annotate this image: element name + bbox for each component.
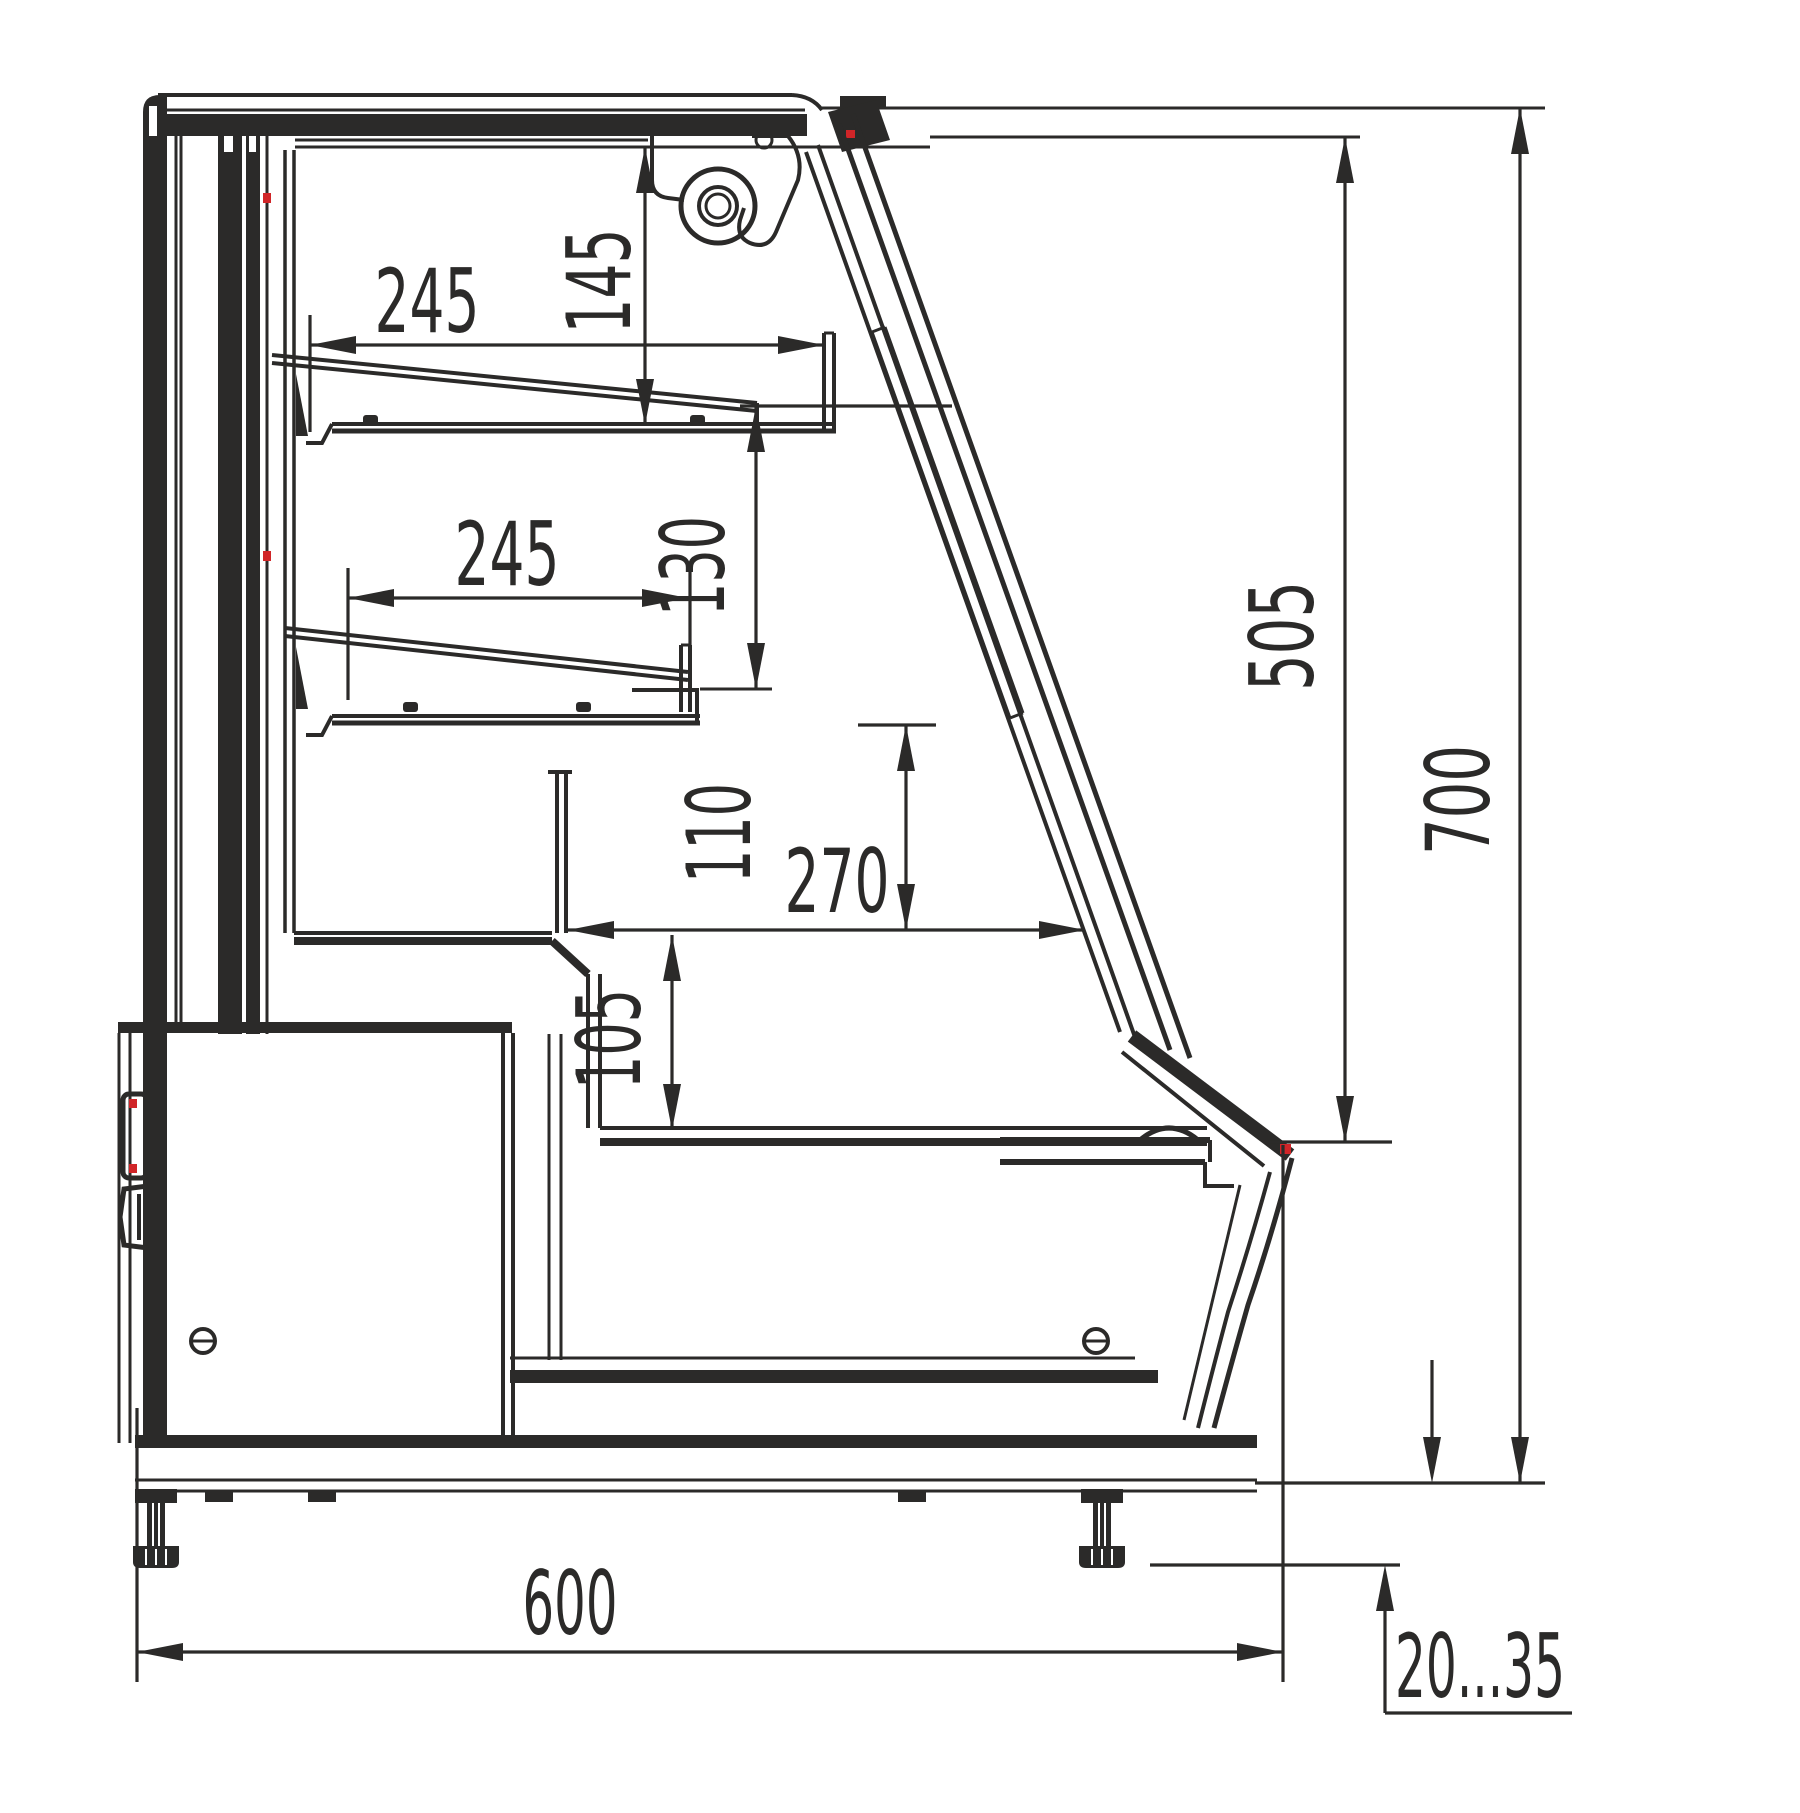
red-fastener-mark <box>263 193 271 203</box>
dim-total-height: 700 <box>1255 108 1545 1483</box>
canopy-band <box>167 114 807 136</box>
dimension-value: 130 <box>642 516 745 616</box>
arrowhead-up <box>1511 108 1529 154</box>
lamp-roller-outer <box>681 169 755 243</box>
foot-nut <box>1081 1489 1123 1503</box>
dim-shelf-low-depth: 245 <box>348 503 690 700</box>
arrowhead-left <box>568 921 614 939</box>
back-column <box>218 124 242 1034</box>
foot-nut <box>135 1489 177 1503</box>
shelf-bolt <box>690 415 705 425</box>
arrowhead-down <box>1423 1437 1441 1483</box>
shelf-lower <box>285 628 772 735</box>
dimension-value: 245 <box>455 503 560 606</box>
switch-red-mark <box>129 1164 137 1173</box>
bracket-line <box>1122 1052 1264 1166</box>
arrowhead-left <box>137 1643 183 1661</box>
arrowhead-right <box>1039 921 1085 939</box>
dimension-value: 20...35 <box>1395 1615 1565 1718</box>
dimension-value: 270 <box>785 830 890 933</box>
dimension-value: 105 <box>558 989 661 1089</box>
arrowhead-down <box>1336 1096 1354 1142</box>
dim-glass-height: 505 <box>1231 137 1392 1142</box>
base-pad <box>898 1491 926 1502</box>
red-hinge-mark <box>846 130 855 138</box>
foot-shaft <box>1093 1503 1111 1546</box>
shelf-rail-hook <box>306 716 332 735</box>
arrowhead-up <box>1336 137 1354 183</box>
red-fastener-mark <box>263 551 271 561</box>
ledge-chamfer <box>552 941 588 974</box>
arrowhead-left <box>348 589 394 607</box>
canopy-corner <box>792 95 822 110</box>
shelf-deck <box>272 355 757 403</box>
dimension-value: 110 <box>668 783 771 883</box>
arrowhead-down <box>663 1084 681 1130</box>
arrowhead-right <box>778 336 824 354</box>
shelf-back-wedge <box>296 647 308 709</box>
dimension-value: 600 <box>523 1552 618 1655</box>
leveling-foot-right <box>1079 1489 1125 1568</box>
shelf-back-wedge <box>296 374 308 436</box>
shelf-deck <box>285 636 688 680</box>
shelf-upper <box>272 333 836 443</box>
front-bumper <box>1084 1158 1292 1428</box>
arrowhead-left <box>310 336 356 354</box>
glass-bottom-bracket <box>1000 1036 1291 1186</box>
dimension-value: 700 <box>1407 745 1510 855</box>
shelf-deck <box>285 628 688 672</box>
drawing-canvas: 245 145 245 130 110 270 <box>0 0 1800 1813</box>
display-case-section-drawing: 245 145 245 130 110 270 <box>0 0 1800 1813</box>
dim-well-depth: 270 <box>568 830 1085 939</box>
back-column <box>246 124 260 1034</box>
back-panel <box>143 95 294 1445</box>
back-wall-outer <box>143 95 167 1445</box>
under-tray-band <box>510 1370 1158 1383</box>
dimension-value: 505 <box>1231 581 1334 691</box>
base-band <box>135 1435 1257 1448</box>
arrowhead-down <box>897 884 915 930</box>
leveling-foot-left <box>133 1489 179 1568</box>
dim-total-depth: 600 <box>137 1145 1283 1682</box>
bumper-outer <box>1214 1158 1292 1428</box>
inner-screen-line <box>885 327 1023 713</box>
dimension-value: 245 <box>375 250 480 353</box>
shelf-front-bracket <box>632 690 697 723</box>
arrowhead-up <box>1376 1565 1394 1611</box>
switch-red-mark <box>129 1099 137 1108</box>
shelf-bolt <box>576 702 591 712</box>
compartment-top <box>118 1022 512 1033</box>
arrowhead-down <box>747 643 765 689</box>
dimension-value: 145 <box>548 229 651 334</box>
shelf-deck <box>272 363 757 411</box>
shelf-bolt <box>403 702 418 712</box>
arrowhead-down <box>1511 1437 1529 1483</box>
back-wall-notch <box>149 106 157 136</box>
dim-foot-adjust: 20...35 <box>1150 1360 1572 1718</box>
lamp-roller-inner <box>706 194 730 218</box>
inner-screen-line <box>872 332 1010 718</box>
shelf-bolt <box>363 415 378 425</box>
machine-compartment <box>118 1022 513 1443</box>
arrowhead-up <box>663 935 681 981</box>
base-pad <box>205 1491 233 1502</box>
base-pad <box>308 1491 336 1502</box>
foot-shaft <box>147 1503 165 1546</box>
step-edge <box>1205 1162 1234 1186</box>
arrowhead-up <box>897 725 915 771</box>
arrowhead-right <box>1237 1643 1283 1661</box>
